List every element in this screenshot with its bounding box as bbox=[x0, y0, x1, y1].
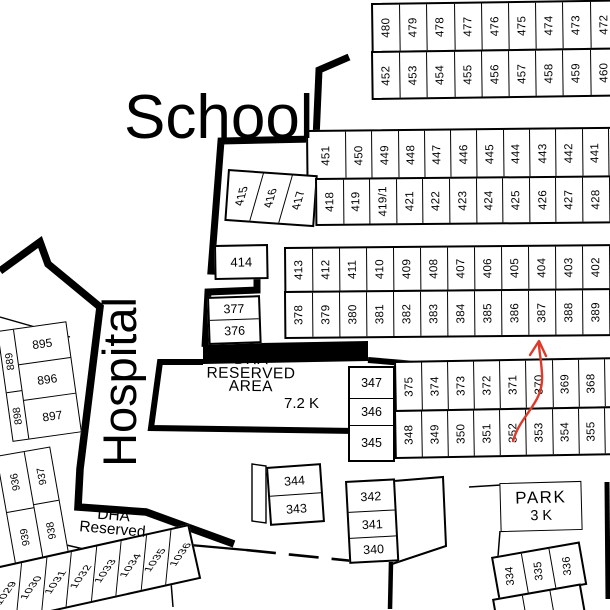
road-bar-bottom bbox=[390, 562, 391, 609]
dha-area-size-label: 7.2 K bbox=[284, 395, 319, 412]
plot-label: 419 bbox=[351, 192, 363, 212]
plot-label: 378 bbox=[293, 305, 305, 325]
plot-422: 422 bbox=[423, 179, 450, 223]
plot-380: 380 bbox=[340, 292, 367, 336]
plot-402: 402 bbox=[583, 246, 610, 288]
plot-448: 448 bbox=[399, 131, 426, 178]
plot-label: 411 bbox=[347, 260, 359, 279]
plot-418: 418 bbox=[317, 180, 344, 224]
plot-label: 354 bbox=[559, 421, 571, 441]
plot-472: 472 bbox=[591, 2, 610, 48]
plot-label: 381 bbox=[374, 304, 386, 324]
plot-409: 409 bbox=[394, 248, 421, 290]
plot-label: 446 bbox=[458, 144, 470, 164]
plot-stack: 414 bbox=[214, 244, 269, 280]
plot-381: 381 bbox=[367, 292, 394, 336]
plot-label: 348 bbox=[403, 424, 415, 444]
plot-383: 383 bbox=[421, 292, 448, 336]
plot-label: 407 bbox=[455, 258, 467, 278]
plot-label: 476 bbox=[489, 16, 501, 36]
park-size-label: 3 K bbox=[501, 507, 581, 525]
plot-405: 405 bbox=[502, 247, 529, 289]
plot-455: 455 bbox=[455, 51, 483, 96]
plot-label: 409 bbox=[401, 259, 413, 279]
plot-label: 428 bbox=[590, 189, 602, 209]
plot-stack: 344343 bbox=[266, 463, 325, 526]
plot-449: 449 bbox=[372, 131, 399, 178]
plot-label: 448 bbox=[405, 144, 417, 164]
plot-label: 444 bbox=[511, 143, 523, 163]
plot-label: 473 bbox=[571, 15, 583, 35]
plot-label: 371 bbox=[507, 374, 519, 394]
plot-441: 441 bbox=[583, 129, 610, 176]
plot-label: 472 bbox=[598, 15, 610, 35]
plot-label: 1030 bbox=[17, 575, 45, 600]
plot-label: 460 bbox=[598, 62, 610, 82]
right-edge-bar bbox=[607, 482, 608, 599]
plot-355: 355 bbox=[579, 408, 606, 453]
plot-label: 406 bbox=[482, 258, 494, 278]
plot-label: 425 bbox=[510, 190, 522, 210]
strip-left-of-344 bbox=[252, 464, 266, 523]
plot-419-1: 419/1 bbox=[370, 179, 397, 223]
plot-426: 426 bbox=[530, 178, 557, 222]
plot-label: 372 bbox=[481, 375, 493, 395]
plot-454: 454 bbox=[427, 52, 455, 97]
plot-442: 442 bbox=[556, 129, 583, 176]
plot-label: 413 bbox=[293, 260, 305, 280]
plot-label: 459 bbox=[571, 63, 583, 83]
plot-row: 348349350351352353354355 bbox=[394, 406, 610, 459]
plot-410: 410 bbox=[367, 248, 394, 290]
plot-label: 350 bbox=[455, 423, 467, 443]
plot-370: 370 bbox=[526, 360, 553, 407]
plot-label: 334 bbox=[504, 566, 518, 586]
plot-label: 421 bbox=[404, 191, 416, 211]
plot-label: 1036 bbox=[167, 542, 195, 567]
plot-label: 450 bbox=[353, 145, 365, 165]
plot-897: 897 bbox=[24, 394, 81, 439]
plot-label: 451 bbox=[321, 145, 333, 165]
map-stage: School Hospital DHA RESERVED AREA 7.2 K … bbox=[0, 0, 610, 610]
plot-425: 425 bbox=[503, 178, 530, 222]
plot-342: 342 bbox=[347, 480, 395, 512]
plot-479: 479 bbox=[400, 4, 428, 50]
plot-label: 1034 bbox=[117, 553, 145, 578]
plot-label: 412 bbox=[320, 260, 332, 280]
plot-label: 418 bbox=[324, 192, 336, 212]
plot-460: 460 bbox=[591, 50, 610, 95]
plot-label: 1032 bbox=[67, 564, 95, 589]
plot-377: 377 bbox=[209, 297, 259, 321]
plot-375: 375 bbox=[396, 363, 423, 410]
plot-label: 449 bbox=[379, 145, 391, 165]
plot-351: 351 bbox=[474, 410, 501, 455]
plot-385: 385 bbox=[475, 291, 502, 335]
plot-label: 422 bbox=[430, 191, 442, 211]
plot-label: 373 bbox=[455, 375, 467, 395]
plot-stack: 342341340 bbox=[345, 478, 399, 564]
plot-edge bbox=[605, 408, 610, 453]
plot-label: 447 bbox=[432, 144, 444, 164]
plot-edge bbox=[551, 586, 585, 610]
plot-label: 380 bbox=[347, 304, 359, 324]
plot-label: 441 bbox=[589, 142, 601, 162]
plot-label: 423 bbox=[457, 191, 469, 211]
plot-350: 350 bbox=[448, 411, 475, 456]
plot-404: 404 bbox=[529, 247, 556, 289]
plot-389: 389 bbox=[583, 290, 610, 334]
plot-384: 384 bbox=[448, 291, 475, 335]
plot-label: 405 bbox=[509, 258, 521, 278]
plot-447: 447 bbox=[425, 130, 452, 177]
plot-345: 345 bbox=[350, 426, 393, 460]
plot-428: 428 bbox=[583, 177, 610, 221]
plot-label: 384 bbox=[455, 303, 467, 323]
plot-label: 374 bbox=[429, 376, 441, 396]
plot-897-label: 897 bbox=[41, 408, 63, 425]
plot-label: 352 bbox=[507, 422, 519, 442]
plot-452: 452 bbox=[373, 53, 401, 98]
plot-label: 402 bbox=[590, 257, 602, 277]
plot-label: 1029 bbox=[0, 581, 20, 606]
plot-458: 458 bbox=[536, 50, 564, 95]
plot-label: 408 bbox=[428, 259, 440, 279]
plot-label: 368 bbox=[585, 373, 597, 393]
plot-419: 419 bbox=[344, 180, 371, 224]
plot-427: 427 bbox=[556, 178, 583, 222]
plot-label: 442 bbox=[563, 143, 575, 163]
plot-label: 1031 bbox=[42, 569, 70, 594]
plot-label: 457 bbox=[516, 63, 528, 83]
plot-444: 444 bbox=[504, 130, 531, 177]
plot-label: 404 bbox=[536, 258, 548, 278]
plot-label: 385 bbox=[482, 303, 494, 323]
plot-382: 382 bbox=[394, 292, 421, 336]
plot-378: 378 bbox=[286, 293, 313, 337]
plot-label: 351 bbox=[481, 423, 493, 443]
plot-label: 480 bbox=[380, 18, 392, 38]
plot-label: 416 bbox=[261, 187, 279, 208]
plot-896-label: 896 bbox=[36, 371, 58, 388]
plot-label: 1035 bbox=[141, 547, 169, 572]
school-label: School bbox=[124, 82, 314, 153]
plot-label: 455 bbox=[462, 64, 474, 84]
plot-row: 480479478477476475474473472 bbox=[371, 0, 610, 53]
dha-reserved-area-label: DHA RESERVED AREA bbox=[195, 353, 307, 394]
plot-423: 423 bbox=[450, 179, 477, 223]
plot-459: 459 bbox=[563, 50, 591, 95]
plot-label: 479 bbox=[407, 17, 419, 37]
plot-346: 346 bbox=[350, 399, 393, 426]
plot-453: 453 bbox=[400, 52, 428, 97]
plot-340: 340 bbox=[350, 536, 397, 561]
plot-label: 389 bbox=[590, 302, 602, 322]
road-dashed-segment bbox=[246, 550, 353, 561]
plot-label: 410 bbox=[374, 259, 386, 279]
plot-445: 445 bbox=[477, 130, 504, 177]
plot-label: 382 bbox=[401, 304, 413, 324]
plot-label: 386 bbox=[509, 303, 521, 323]
plot-344: 344 bbox=[268, 465, 321, 496]
plot-label: 415 bbox=[233, 185, 251, 206]
plot-label: 387 bbox=[536, 303, 548, 323]
plot-480: 480 bbox=[373, 5, 401, 51]
plot-row: 452453454455456457458459460 bbox=[371, 48, 610, 100]
plot-row: 378379380381382383384385386387388389 bbox=[284, 288, 610, 339]
plot-stack: 347346345 bbox=[348, 366, 395, 462]
plot-label: 427 bbox=[563, 190, 575, 210]
plot-406: 406 bbox=[475, 247, 502, 289]
plot-411: 411 bbox=[340, 248, 367, 290]
plot-label: 477 bbox=[462, 17, 474, 37]
plot-label: 452 bbox=[380, 65, 392, 85]
plot-336: 336 bbox=[550, 544, 585, 588]
plot-450: 450 bbox=[346, 131, 373, 178]
plot-label: 335 bbox=[532, 561, 546, 581]
plot-936-label: 936 bbox=[8, 472, 23, 491]
plot-row: 415416417 bbox=[224, 169, 317, 227]
plot-label: 336 bbox=[560, 556, 574, 576]
plot-347: 347 bbox=[350, 368, 393, 399]
plot-373: 373 bbox=[448, 362, 475, 409]
plot-349: 349 bbox=[422, 411, 449, 456]
plot-label: 453 bbox=[407, 65, 419, 85]
plot-374: 374 bbox=[422, 362, 449, 409]
plot-label: 426 bbox=[537, 190, 549, 210]
plot-938-label: 938 bbox=[44, 521, 59, 540]
plot-371: 371 bbox=[500, 361, 527, 408]
plot-row: 418419419/1421422423424425426427428 bbox=[315, 175, 610, 226]
plot-label: 475 bbox=[516, 16, 528, 36]
plot-label: 454 bbox=[435, 64, 447, 84]
plot-label: 458 bbox=[543, 63, 555, 83]
plot-341: 341 bbox=[349, 510, 396, 538]
plot-label: 349 bbox=[429, 424, 441, 444]
plot-414: 414 bbox=[216, 246, 267, 278]
plot-edge bbox=[605, 359, 610, 406]
plot-376: 376 bbox=[210, 319, 260, 343]
plot-352: 352 bbox=[500, 410, 527, 455]
plot-label: 1033 bbox=[92, 558, 120, 583]
plot-443: 443 bbox=[530, 129, 557, 176]
plot-413: 413 bbox=[286, 249, 313, 291]
hospital-label: Hospital bbox=[91, 280, 149, 484]
plot-898-label: 898 bbox=[10, 406, 24, 425]
plot-939-label: 939 bbox=[18, 527, 33, 546]
plot-388: 388 bbox=[556, 290, 583, 334]
plot-label: 403 bbox=[563, 257, 575, 277]
park-label: PARK bbox=[501, 487, 581, 509]
plot-477: 477 bbox=[455, 3, 483, 49]
plot-476: 476 bbox=[482, 3, 510, 49]
plot-label: 369 bbox=[559, 373, 571, 393]
plot-408: 408 bbox=[421, 248, 448, 290]
plot-354: 354 bbox=[553, 409, 580, 454]
plot-368: 368 bbox=[579, 359, 606, 406]
plot-424: 424 bbox=[477, 178, 504, 222]
plot-478: 478 bbox=[427, 4, 455, 50]
plot-label: 478 bbox=[435, 17, 447, 37]
plot-889-label: 889 bbox=[3, 351, 17, 370]
plot-456: 456 bbox=[482, 51, 510, 96]
plot-473: 473 bbox=[563, 2, 591, 48]
plot-label: 375 bbox=[403, 376, 415, 396]
plot-474: 474 bbox=[536, 2, 564, 48]
plot-407: 407 bbox=[448, 247, 475, 289]
plot-451: 451 bbox=[308, 132, 346, 179]
plot-row: 451450449448447446445444443442441 bbox=[306, 127, 610, 181]
plot-387: 387 bbox=[529, 291, 556, 335]
plot-372: 372 bbox=[474, 361, 501, 408]
plot-label: 456 bbox=[489, 64, 501, 84]
park-block: PARK 3 K bbox=[499, 481, 582, 532]
road-line-342 bbox=[392, 477, 446, 564]
plot-403: 403 bbox=[556, 246, 583, 288]
plot-row: 413412411410409408407406405404403402 bbox=[284, 244, 610, 293]
plot-label: 443 bbox=[537, 143, 549, 163]
plot-343: 343 bbox=[270, 493, 323, 523]
plot-369: 369 bbox=[553, 360, 580, 407]
plot-348: 348 bbox=[396, 412, 423, 457]
plot-379: 379 bbox=[313, 293, 340, 337]
plot-label: 445 bbox=[484, 143, 496, 163]
plot-label: 383 bbox=[428, 304, 440, 324]
plot-895-label: 895 bbox=[31, 335, 53, 352]
plot-1036: 1036 bbox=[166, 525, 196, 585]
plot-label: 370 bbox=[533, 374, 545, 394]
plot-353: 353 bbox=[526, 409, 553, 454]
plot-label: 419/1 bbox=[377, 186, 389, 216]
plot-475: 475 bbox=[509, 3, 537, 49]
plot-386: 386 bbox=[502, 291, 529, 335]
park-west-line bbox=[469, 485, 501, 487]
plot-label: 353 bbox=[533, 422, 545, 442]
plot-label: 379 bbox=[320, 305, 332, 325]
plot-937-label: 937 bbox=[34, 466, 49, 485]
plot-412: 412 bbox=[313, 249, 340, 291]
plot-457: 457 bbox=[509, 51, 537, 96]
plot-label: 417 bbox=[290, 189, 308, 210]
plot-label: 424 bbox=[483, 190, 495, 210]
plot-label: 355 bbox=[585, 421, 597, 441]
plot-label: 474 bbox=[543, 15, 555, 35]
plot-stack: 377376 bbox=[207, 295, 262, 345]
plot-row: 375374373372371370369368 bbox=[394, 357, 610, 412]
plot-label: 388 bbox=[563, 302, 575, 322]
plot-446: 446 bbox=[451, 130, 478, 177]
plot-421: 421 bbox=[397, 179, 424, 223]
